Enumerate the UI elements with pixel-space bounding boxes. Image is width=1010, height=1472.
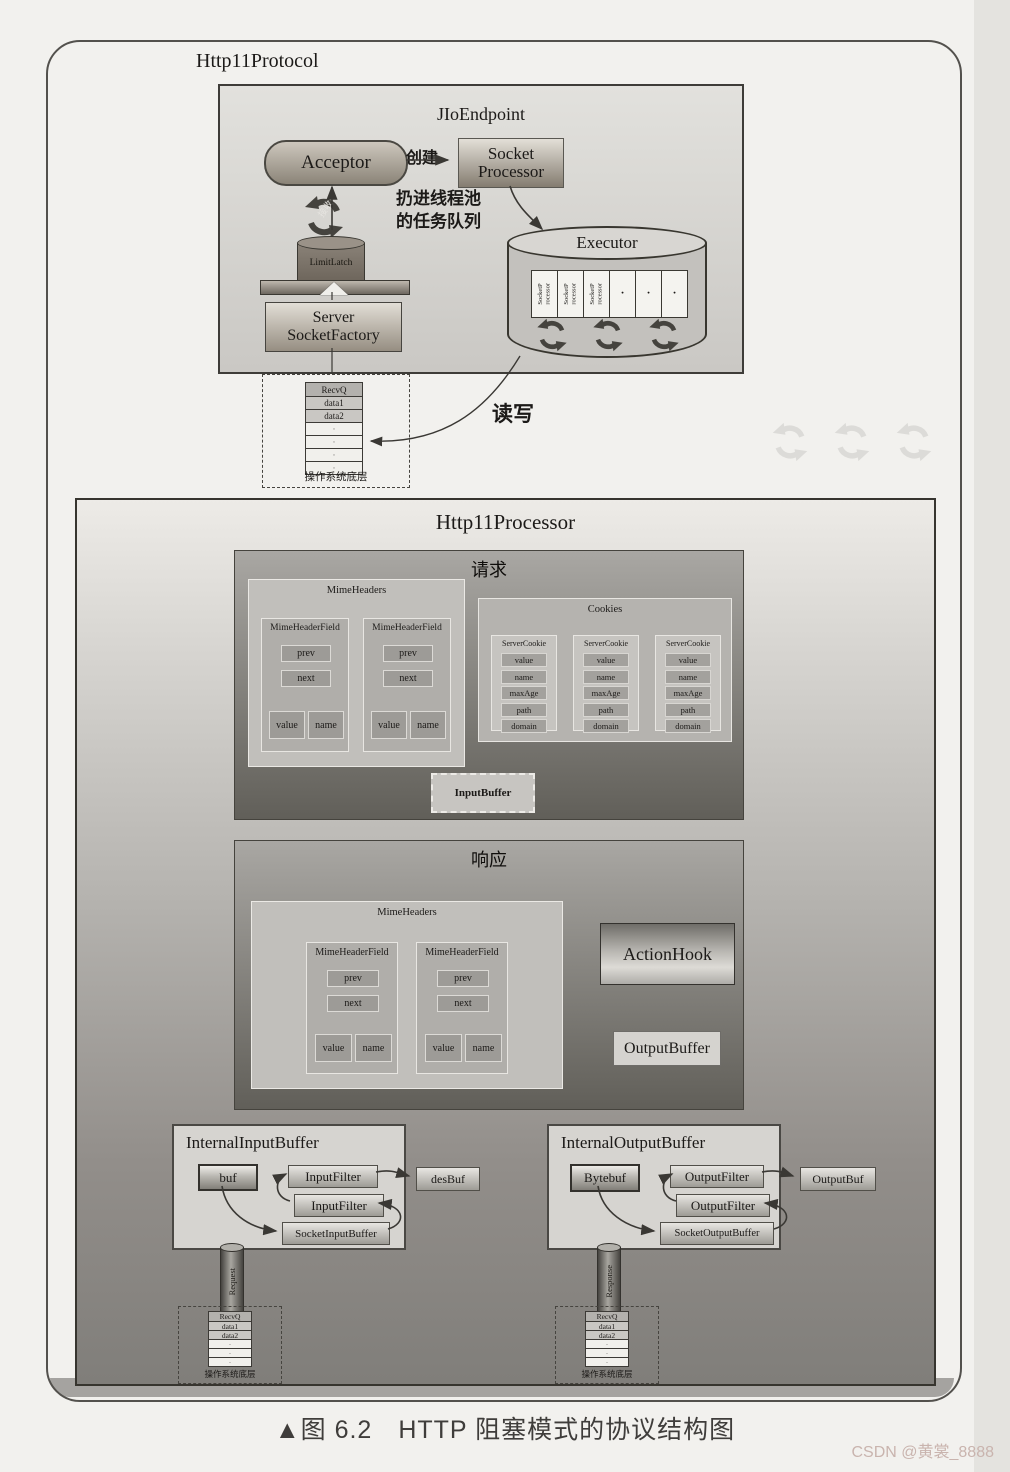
field-next: next [281, 670, 331, 687]
field-next: next [383, 670, 433, 687]
recvq-stack: RecvQ data1 data2 · · · · [305, 383, 363, 475]
limit-latch-cylinder: LimitLatch [297, 236, 365, 286]
field-prev: prev [281, 645, 331, 662]
request-mime-headers: MimeHeaders MimeHeaderField prev next va… [248, 579, 465, 767]
cookie-row: name [665, 670, 711, 684]
thread-pool-note: 扔进线程池 的任务队列 [396, 188, 481, 234]
mime-header-field: MimeHeaderField prev next value name [363, 618, 451, 752]
cookie-row: value [665, 653, 711, 667]
output-filter-node: OutputFilter [676, 1194, 770, 1217]
field-next: next [327, 995, 379, 1012]
mime-header-field: MimeHeaderField prev next value name [306, 942, 398, 1074]
acceptor-node: Acceptor [264, 140, 408, 186]
field-name: name [355, 1034, 392, 1062]
field-value: value [371, 711, 407, 739]
field-prev: prev [383, 645, 433, 662]
cookie-row: name [583, 670, 629, 684]
page-bleed-band [974, 0, 1010, 1472]
task-cell: SocketP rocessor [583, 270, 610, 318]
cookies-title: Cookies [479, 604, 731, 615]
server-cookie: ServerCookie value name maxAge path doma… [573, 635, 639, 731]
field-next: next [437, 995, 489, 1012]
os-layer-box-right: RecvQ data1 data2 · · · 操作系统底层 [555, 1306, 659, 1384]
task-cell-empty: · [661, 270, 688, 318]
recvq-row: data2 [305, 409, 363, 423]
field-value: value [315, 1034, 352, 1062]
server-cookie: ServerCookie value name maxAge path doma… [491, 635, 557, 731]
mime-headers-title: MimeHeaders [249, 585, 464, 596]
cookie-row: path [583, 703, 629, 717]
mime-headers-title: MimeHeaders [252, 907, 562, 918]
recvq-row-empty: · [305, 422, 363, 436]
task-cell: SocketP rocessor [531, 270, 558, 318]
socket-input-buffer-node: SocketInputBuffer [282, 1222, 390, 1245]
os-layer-box-top: RecvQ data1 data2 · · · · 操作系统底层 [262, 374, 410, 488]
mime-header-field: MimeHeaderField prev next value name [261, 618, 349, 752]
task-cell-empty: · [609, 270, 636, 318]
recvq-header: RecvQ [305, 382, 363, 397]
internal-input-buffer-title: InternalInputBuffer [186, 1133, 319, 1153]
field-value: value [425, 1034, 462, 1062]
read-write-label: 读写 [492, 398, 534, 428]
response-mime-headers: MimeHeaders MimeHeaderField prev next va… [251, 901, 563, 1089]
cookie-row: path [501, 703, 547, 717]
mime-header-field: MimeHeaderField prev next value name [416, 942, 508, 1074]
limit-latch-label: LimitLatch [297, 258, 365, 268]
cookies-box: Cookies ServerCookie value name maxAge p… [478, 598, 732, 742]
cookie-row: path [665, 703, 711, 717]
protocol-box: JIoEndpoint Acceptor 创建 Socket Processor… [218, 84, 744, 374]
output-filter-node: OutputFilter [670, 1165, 764, 1188]
task-cell-empty: · [635, 270, 662, 318]
action-hook-node: ActionHook [600, 923, 735, 985]
cookie-row: maxAge [665, 686, 711, 700]
cookie-row: domain [583, 719, 629, 733]
task-cell: SocketP rocessor [557, 270, 584, 318]
executor-task-queue: SocketP rocessor SocketP rocessor Socket… [532, 270, 688, 318]
worker-thread-icons [529, 318, 699, 354]
os-layer-label: 操作系统底层 [556, 1368, 658, 1380]
response-box: 响应 MimeHeaders MimeHeaderField prev next… [234, 840, 744, 1110]
cookie-row: value [583, 653, 629, 667]
cookie-row: domain [665, 719, 711, 733]
limit-latch-cap [297, 236, 365, 250]
output-buffer-node: OutputBuffer [613, 1031, 721, 1066]
desbuf-node: desBuf [416, 1167, 480, 1191]
recvq-row-empty: · [305, 435, 363, 449]
outputbuf-node: OutputBuf [800, 1167, 876, 1191]
cookie-row: maxAge [583, 686, 629, 700]
watermark: CSDN @黄裳_8888 [851, 1438, 994, 1462]
executor-title: Executor [507, 233, 707, 253]
response-title: 响应 [235, 846, 743, 872]
cookie-row: value [501, 653, 547, 667]
server-cookie: ServerCookie value name maxAge path doma… [655, 635, 721, 731]
endpoint-title: JIoEndpoint [220, 104, 742, 125]
processor-title: Http11Processor [77, 510, 934, 535]
input-filter-node: InputFilter [288, 1165, 378, 1188]
bytebuf-node: Bytebuf [570, 1164, 640, 1192]
latch-valve-triangle [320, 282, 348, 295]
input-filter-node: InputFilter [294, 1194, 384, 1217]
field-prev: prev [437, 970, 489, 987]
request-box: 请求 MimeHeaders MimeHeaderField prev next… [234, 550, 744, 820]
input-buffer-node: InputBuffer [431, 773, 535, 813]
request-pipe-label: Request [227, 1268, 237, 1295]
recvq-row: data1 [305, 396, 363, 410]
response-pipe-label: Response [604, 1265, 614, 1298]
os-layer-label: 操作系统底层 [263, 469, 409, 484]
server-socket-factory-label: Server SocketFactory [287, 309, 379, 344]
field-prev: prev [327, 970, 379, 987]
cookie-row: name [501, 670, 547, 684]
protocol-title: Http11Protocol [196, 50, 319, 73]
field-name: name [465, 1034, 502, 1062]
buf-node: buf [198, 1164, 258, 1191]
recvq-stack: RecvQ data1 data2 · · · [208, 1312, 252, 1367]
create-arrow-label: 创建 [406, 144, 438, 168]
field-name: name [308, 711, 344, 739]
cookie-row: domain [501, 719, 547, 733]
cookie-row: maxAge [501, 686, 547, 700]
processor-box: Http11Processor 请求 MimeHeaders MimeHeade… [75, 498, 936, 1386]
internal-output-buffer-title: InternalOutputBuffer [561, 1133, 705, 1153]
figure-canvas: Http11Protocol JIoEndpoint Acceptor 创建 S… [0, 0, 1010, 1472]
recvq-row-empty: · [305, 448, 363, 462]
socket-processor-node: Socket Processor [458, 138, 564, 188]
os-layer-label: 操作系统底层 [179, 1368, 281, 1380]
server-socket-factory-node: Server SocketFactory [265, 302, 402, 352]
field-name: name [410, 711, 446, 739]
socket-output-buffer-node: SocketOutputBuffer [660, 1222, 774, 1245]
acceptor-label: Acceptor [301, 152, 371, 174]
socket-processor-label: Socket Processor [478, 145, 544, 181]
recvq-stack: RecvQ data1 data2 · · · [585, 1312, 629, 1367]
field-value: value [269, 711, 305, 739]
os-layer-box-left: RecvQ data1 data2 · · · 操作系统底层 [178, 1306, 282, 1384]
executor-cylinder: Executor SocketP rocessor SocketP rocess… [507, 226, 707, 358]
